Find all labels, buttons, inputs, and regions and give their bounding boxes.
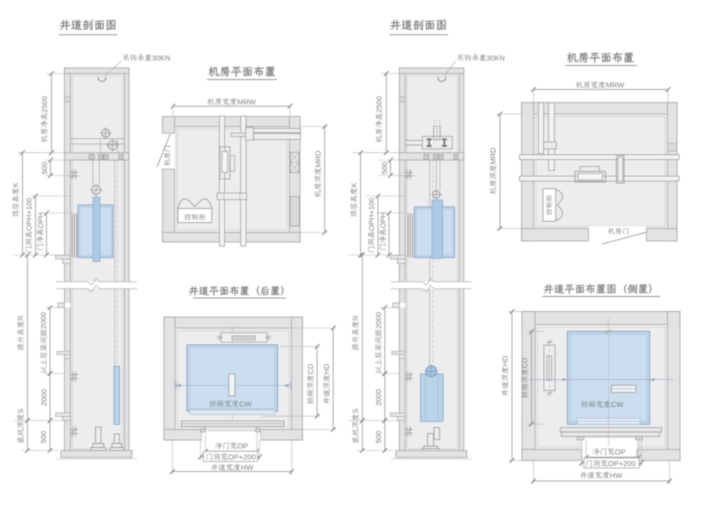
svg-text:K: K xyxy=(349,182,358,187)
svg-text:2000: 2000 xyxy=(39,312,48,329)
svg-text:CD: CD xyxy=(520,357,529,368)
svg-text:S: S xyxy=(351,408,360,413)
svg-text:MRW: MRW xyxy=(237,97,257,106)
svg-text:HD: HD xyxy=(501,355,510,366)
svg-text:2000: 2000 xyxy=(374,389,383,406)
svg-text:OPH+100: OPH+100 xyxy=(367,198,376,231)
svg-text:30KN: 30KN xyxy=(486,53,505,62)
svg-text:HW: HW xyxy=(241,463,254,472)
svg-text:2000: 2000 xyxy=(374,312,383,329)
svg-text:S: S xyxy=(16,408,25,413)
svg-text:MRW: MRW xyxy=(606,81,626,90)
svg-text:500: 500 xyxy=(380,162,389,175)
svg-text:2000: 2000 xyxy=(39,389,48,406)
svg-text:R: R xyxy=(351,315,360,321)
svg-text:OPH+100: OPH+100 xyxy=(24,198,33,231)
svg-text:2500: 2500 xyxy=(375,96,384,113)
svg-text:OP: OP xyxy=(237,441,248,450)
svg-text:R: R xyxy=(16,315,25,321)
svg-text:OP+200: OP+200 xyxy=(608,459,636,468)
svg-text:HW: HW xyxy=(610,471,623,480)
svg-text:2500: 2500 xyxy=(40,96,49,113)
svg-text:OP: OP xyxy=(615,447,626,456)
svg-text:500: 500 xyxy=(39,431,48,444)
svg-text:MRD: MRD xyxy=(489,147,498,165)
svg-text:500: 500 xyxy=(374,431,383,444)
svg-text:MRD: MRD xyxy=(314,150,323,168)
svg-text:500: 500 xyxy=(40,162,49,175)
svg-text:K: K xyxy=(11,182,20,187)
svg-text:30KN: 30KN xyxy=(152,53,171,62)
svg-text:OPH: OPH xyxy=(378,212,387,228)
svg-text:OP+200: OP+200 xyxy=(228,452,256,461)
svg-text:OPH: OPH xyxy=(36,212,45,228)
svg-text:CD: CD xyxy=(306,363,315,374)
svg-text:CW: CW xyxy=(611,400,624,409)
svg-text:CW: CW xyxy=(239,399,252,408)
svg-text:HD: HD xyxy=(322,363,331,374)
